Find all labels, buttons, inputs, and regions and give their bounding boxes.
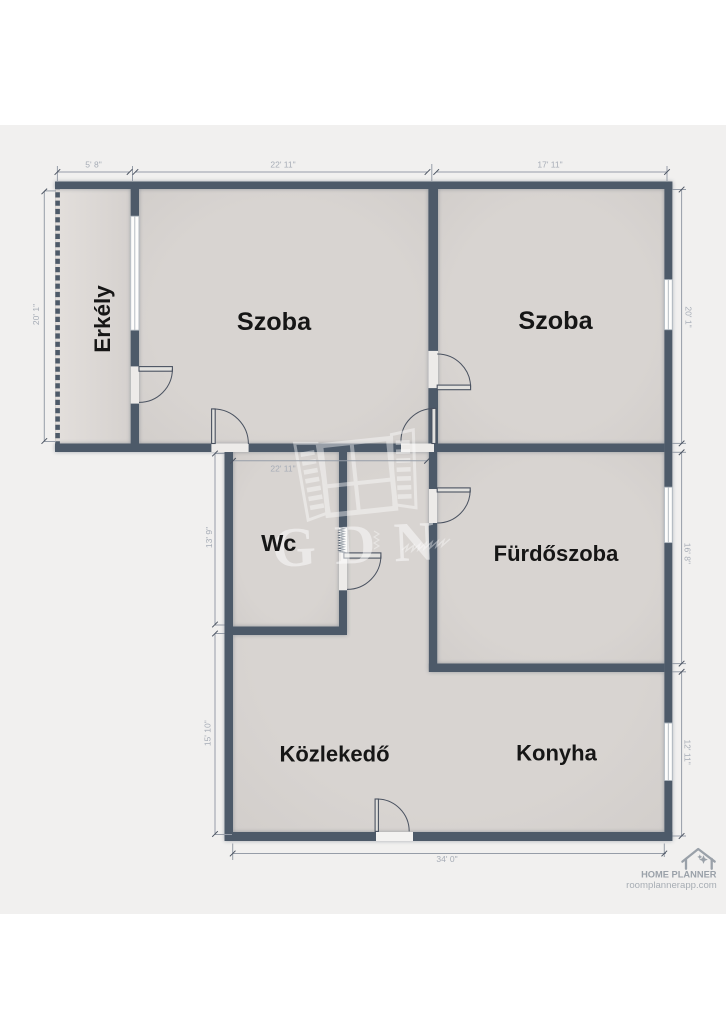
svg-text:Wc: Wc	[261, 530, 296, 556]
svg-text:HOME PLANNER: HOME PLANNER	[641, 870, 717, 880]
svg-text:roomplannerapp.com: roomplannerapp.com	[626, 880, 717, 891]
svg-text:Közlekedő: Közlekedő	[279, 742, 389, 767]
svg-text:Szoba: Szoba	[237, 308, 312, 336]
svg-text:34' 0": 34' 0"	[436, 854, 457, 864]
svg-text:16' 8": 16' 8"	[683, 543, 693, 564]
svg-text:Fürdőszoba: Fürdőszoba	[494, 541, 619, 566]
svg-text:Erkély: Erkély	[90, 285, 115, 353]
svg-text:15' 10": 15' 10"	[203, 720, 213, 746]
svg-text:5' 8": 5' 8"	[85, 159, 101, 169]
svg-text:17' 11": 17' 11"	[537, 159, 562, 169]
svg-text:GDN: GDN	[271, 510, 455, 580]
svg-text:Konyha: Konyha	[516, 741, 597, 766]
svg-text:13' 9": 13' 9"	[204, 527, 214, 548]
svg-text:Szoba: Szoba	[518, 307, 593, 335]
svg-text:12' 11": 12' 11"	[683, 739, 693, 764]
svg-text:20' 1": 20' 1"	[31, 304, 41, 325]
svg-text:20' 1": 20' 1"	[683, 306, 693, 327]
svg-text:22' 11": 22' 11"	[270, 159, 295, 169]
svg-text:22' 11": 22' 11"	[270, 463, 295, 473]
